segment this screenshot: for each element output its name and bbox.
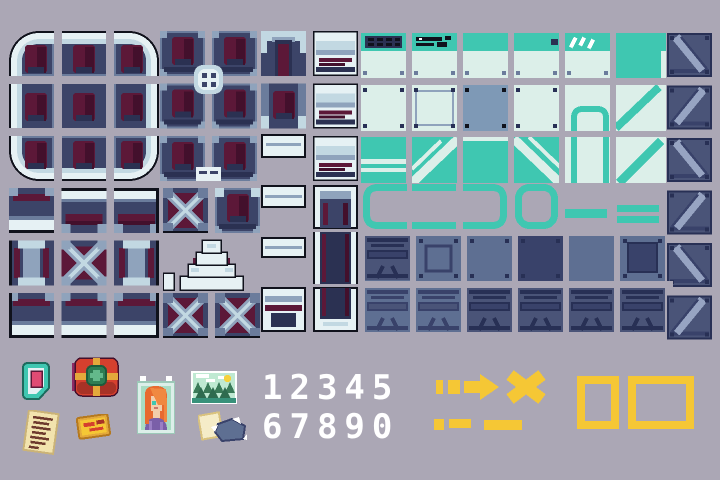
digits-row-1: 12345 <box>262 371 399 405</box>
outlined-room-tiles <box>9 188 159 338</box>
side-wall-tiles <box>314 32 358 181</box>
square-frame-icon <box>581 380 615 425</box>
x-icon <box>510 375 542 399</box>
note-icon <box>23 410 58 454</box>
digits-row-2: 67890 <box>262 410 399 444</box>
slate-crate-tiles <box>365 236 673 333</box>
papers-icon <box>198 412 247 441</box>
door-corridor-tiles <box>313 186 358 331</box>
ticket-icon <box>77 414 111 439</box>
teal-panel-tiles <box>361 33 669 183</box>
landscape-icon <box>192 372 236 403</box>
rounded-room-tiles <box>9 31 159 181</box>
supply-box-icon <box>72 358 118 396</box>
dash-marks-icon <box>434 419 522 430</box>
small-wall-tiles <box>262 186 305 331</box>
portrait-icon <box>137 376 175 434</box>
strut-tile-column <box>667 33 712 340</box>
column-wall-tiles <box>261 31 306 157</box>
navy-wall-tiles <box>160 31 257 181</box>
stairs-and-crate-tiles <box>163 188 260 338</box>
teal-bracket-markers <box>367 184 660 229</box>
rect-frame-icon <box>632 380 690 425</box>
card-badge-icon <box>23 363 49 399</box>
tileset-sheet: 12345 67890 <box>0 0 720 480</box>
arrow-icon <box>436 374 499 400</box>
